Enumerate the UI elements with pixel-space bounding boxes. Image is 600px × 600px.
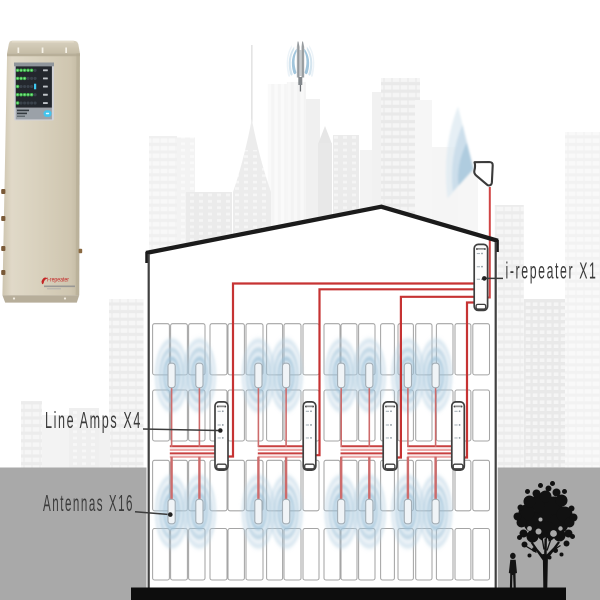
svg-text:Line Amps X4: Line Amps X4 <box>45 407 142 433</box>
svg-text:i-repeater: i-repeater <box>47 277 70 284</box>
svg-text:i-repeater X1: i-repeater X1 <box>506 257 598 283</box>
svg-text:Antennas X16: Antennas X16 <box>43 490 134 516</box>
